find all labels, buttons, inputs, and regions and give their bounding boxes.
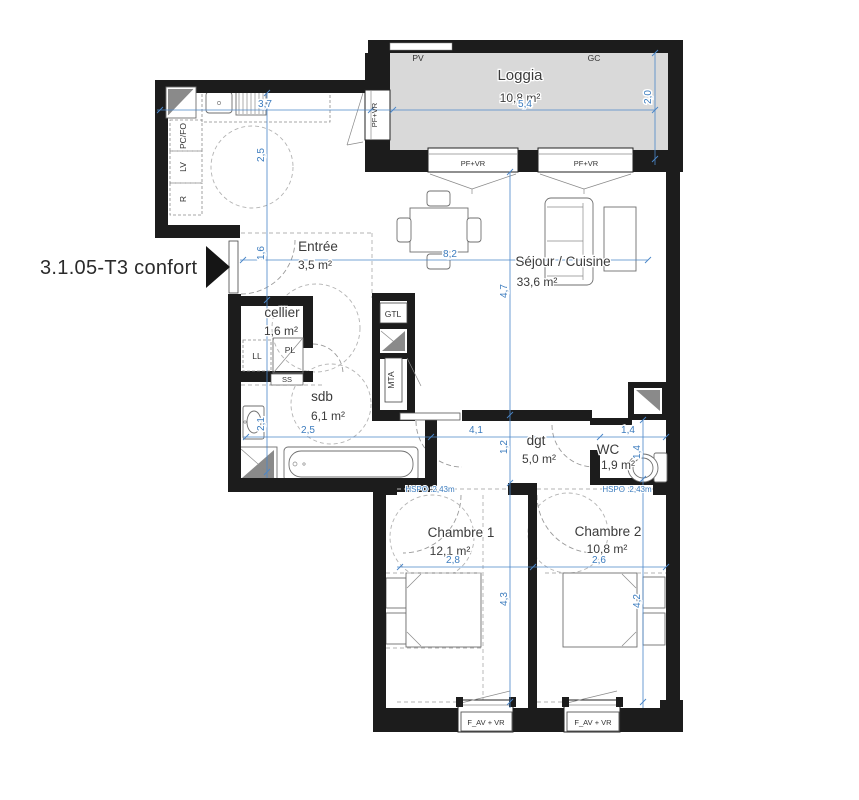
room-name-loggia: Loggia <box>497 67 543 84</box>
dim-sdb-width: 2,5 <box>301 425 315 436</box>
label-lv: LV <box>178 162 188 172</box>
dim-wc-depth: 1,4 <box>632 445 643 459</box>
room-area-sdb: 6,1 m² <box>311 409 345 423</box>
room-area-chambre2: 10,8 m² <box>587 542 628 556</box>
label-gc: GC <box>588 53 601 63</box>
kitchen-corner-duct <box>166 87 196 118</box>
bed-chambre1 <box>386 573 481 647</box>
room-name-cellier: cellier <box>264 305 300 320</box>
floor-plan-page: 3.1.05-T3 confort Loggia 10,8 m² PV GC P… <box>0 0 859 800</box>
room-area-cellier: 1,6 m² <box>264 324 298 338</box>
bed-chambre2 <box>563 573 665 647</box>
label-hspo-chambre1: HSPO :2,43m <box>405 485 455 494</box>
dim-wc-width: 1,4 <box>621 425 635 436</box>
sdb-duct <box>239 447 277 482</box>
label-mta: MTA <box>386 371 396 389</box>
unit-title: 3.1.05-T3 confort <box>40 257 198 279</box>
dim-sejour-width: 8,2 <box>443 249 457 260</box>
entrance-arrow-icon <box>206 246 230 288</box>
dim-chambre2-depth: 4,2 <box>632 594 643 608</box>
label-gtl: GTL <box>385 309 402 319</box>
room-name-dgt: dgt <box>527 433 546 448</box>
room-name-chambre2: Chambre 2 <box>575 524 642 539</box>
room-name-sejour: Séjour / Cuisine <box>515 254 610 269</box>
dim-chambre1-width: 2,8 <box>446 555 460 566</box>
room-area-wc: 1,9 m² <box>601 458 635 472</box>
loggia-window-1 <box>428 148 518 194</box>
entrance-door <box>229 241 238 293</box>
label-favvr-window2: F_AV + VR <box>574 718 612 727</box>
dim-sdb-depth: 2,1 <box>256 417 267 431</box>
label-r: R <box>178 196 188 202</box>
room-name-entree: Entrée <box>298 239 338 254</box>
room-name-wc: WC <box>597 442 620 457</box>
label-pfvr-window3: PF+VR <box>370 102 379 127</box>
dining-table <box>397 191 481 269</box>
dim-chambre1-depth: 4,3 <box>499 592 510 606</box>
label-hspo-chambre2: HSPO :2,43m <box>602 485 652 494</box>
label-pl: PL <box>285 345 296 355</box>
wc-duct <box>634 388 662 414</box>
dgt-door-leaf <box>400 413 460 420</box>
room-area-entree: 3,5 m² <box>298 258 332 272</box>
dim-dgt-width: 4,1 <box>469 425 483 436</box>
dim-dgt-depth: 1,2 <box>499 440 510 454</box>
column-duct <box>380 329 407 353</box>
room-area-dgt: 5,0 m² <box>522 452 556 466</box>
dim-kitchen-depth: 2,5 <box>256 148 267 162</box>
room-name-chambre1: Chambre 1 <box>428 525 495 540</box>
dim-sejour-depth: 4,7 <box>499 284 510 298</box>
dim-loggia-depth: 2,0 <box>643 90 654 104</box>
dim-chambre2-width: 2,6 <box>592 555 606 566</box>
label-pcfo: PC/FO <box>178 123 188 149</box>
dim-loggia-width: 5,4 <box>518 99 532 110</box>
kitchen-side-window <box>347 90 390 145</box>
label-ss: SS <box>282 375 292 384</box>
room-name-sdb: sdb <box>311 389 333 404</box>
label-pfvr-window1: PF+VR <box>461 159 486 168</box>
loggia-window-2 <box>538 148 633 194</box>
label-pv: PV <box>412 53 424 63</box>
label-pfvr-window2: PF+VR <box>574 159 599 168</box>
label-favvr-window1: F_AV + VR <box>467 718 505 727</box>
pv-vent-strip <box>390 43 452 50</box>
dim-entree-depth: 1,6 <box>256 246 267 260</box>
floor-plan-drawing: 3.1.05-T3 confort Loggia 10,8 m² PV GC P… <box>0 0 859 800</box>
label-ll: LL <box>252 351 262 361</box>
bathtub <box>284 447 418 481</box>
sofa <box>545 198 593 285</box>
dim-kitchen-width: 3,7 <box>258 99 272 110</box>
room-area-sejour: 33,6 m² <box>517 275 558 289</box>
